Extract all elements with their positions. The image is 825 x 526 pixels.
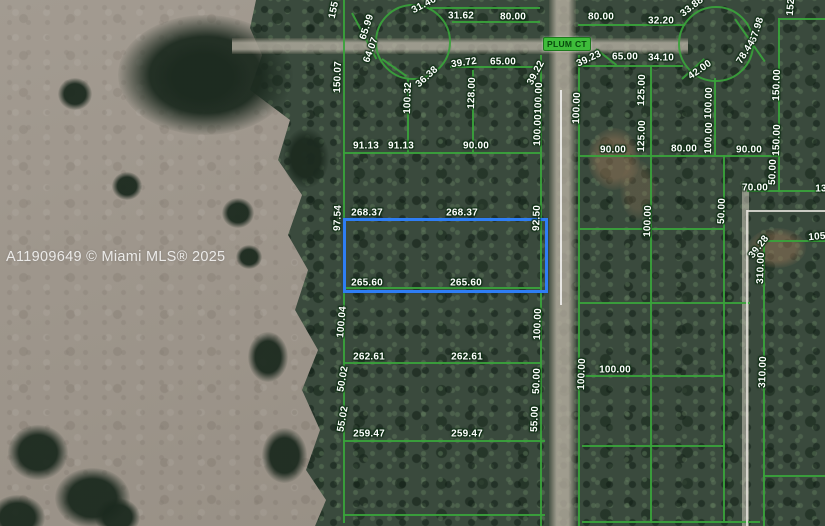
dimension-label: 34.10 xyxy=(648,53,674,64)
dimension-label: 105 xyxy=(808,231,825,243)
dimension-label: 100.00 xyxy=(571,92,583,124)
dimension-label: 90.00 xyxy=(463,141,489,152)
dimension-label: 150.00 xyxy=(771,69,783,101)
dimension-label: 80.00 xyxy=(500,12,526,23)
dimension-label: 310.00 xyxy=(757,356,769,388)
dimension-label: 265.60 xyxy=(450,278,482,289)
parcel-line xyxy=(650,66,652,521)
dimension-label: 50.00 xyxy=(767,159,779,185)
dimension-label: 13 xyxy=(815,184,825,195)
plat-boundary-line xyxy=(746,210,748,526)
dimension-label: 39.72 xyxy=(450,56,477,71)
aerial-parcel-map: 15565.9964.0731.46150.0736.38100.3231.62… xyxy=(0,0,825,526)
dimension-label: 55.00 xyxy=(529,406,541,432)
dimension-label: 65.00 xyxy=(490,57,516,68)
dimension-label: 268.37 xyxy=(351,208,383,219)
dimension-label: 125.00 xyxy=(636,74,648,106)
dimension-label: 262.61 xyxy=(451,352,483,363)
dimension-label: 91.13 xyxy=(388,141,414,152)
dimension-label: 100.32 xyxy=(402,82,414,114)
dimension-label: 55.02 xyxy=(335,405,350,433)
dimension-label: 150.00 xyxy=(771,124,783,156)
dimension-label: 259.47 xyxy=(353,429,385,440)
dimension-label: 100.00 xyxy=(599,365,631,376)
dimension-label: 92.50 xyxy=(531,205,543,231)
parcel-line xyxy=(343,152,540,154)
parcel-line xyxy=(778,18,825,20)
dimension-label: 90.00 xyxy=(736,145,762,156)
dimension-label: 80.00 xyxy=(671,144,697,155)
parcel-line xyxy=(343,514,545,516)
parcel-line xyxy=(582,521,760,523)
dimension-label: 91.13 xyxy=(353,141,379,152)
mls-watermark: A11909649 © Miami MLS® 2025 xyxy=(6,249,225,265)
dimension-label: 100.00 xyxy=(532,308,544,340)
dimension-label: 50.02 xyxy=(335,365,350,393)
dimension-label: 31.62 xyxy=(448,11,474,22)
dimension-label: 150.07 xyxy=(332,61,344,93)
dimension-label: 152 xyxy=(785,0,797,16)
parcel-line xyxy=(582,445,725,447)
dimension-label: 259.47 xyxy=(451,429,483,440)
plat-boundary-line xyxy=(747,210,825,212)
dimension-label: 265.60 xyxy=(351,278,383,289)
dimension-label: 100.00 xyxy=(576,358,588,390)
cul-de-sac-outline xyxy=(375,4,451,80)
parcel-line xyxy=(578,302,750,304)
dimension-label: 70.00 xyxy=(742,183,768,194)
parcel-line xyxy=(578,65,683,67)
dimension-label: 50.00 xyxy=(531,368,543,394)
dimension-label: 100.00 xyxy=(533,82,545,114)
dimension-label: 90.00 xyxy=(600,145,626,156)
parcel-line xyxy=(343,440,545,442)
dimension-label: 65.00 xyxy=(612,52,638,63)
dimension-label: 125.00 xyxy=(636,120,648,152)
dimension-label: 310.00 xyxy=(755,252,767,284)
dimension-label: 97.54 xyxy=(332,205,344,231)
dimension-label: 80.00 xyxy=(588,12,614,23)
dimension-label: 50.00 xyxy=(716,198,728,224)
parcel-line xyxy=(763,475,825,477)
dimension-label: 100.00 xyxy=(532,114,544,146)
dimension-label: 128.00 xyxy=(466,77,478,109)
dimension-label: 32.20 xyxy=(648,16,674,27)
dimension-label: 268.37 xyxy=(446,208,478,219)
parcel-line xyxy=(430,7,540,9)
dimension-label: 100.00 xyxy=(703,87,715,119)
dimension-label: 100.00 xyxy=(703,122,715,154)
parcel-line xyxy=(578,55,580,526)
dimension-label: 155 xyxy=(327,0,341,19)
dimension-label: 262.61 xyxy=(353,352,385,363)
dimension-label: 100.04 xyxy=(335,306,349,339)
dimension-label: 100.00 xyxy=(642,205,654,237)
street-label-plum-ct: PLUM CT xyxy=(543,37,591,51)
